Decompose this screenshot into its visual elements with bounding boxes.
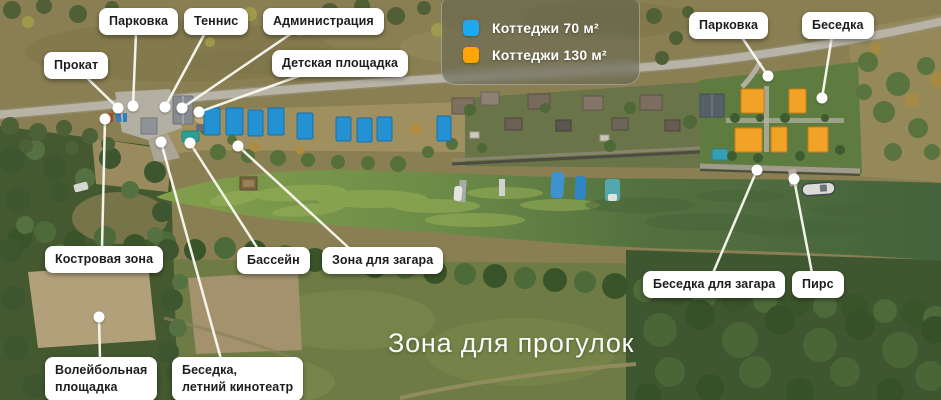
callout-besedka-dlya-zagara: Беседка для загара [643, 271, 785, 298]
legend-swatch-cottage-70 [463, 20, 479, 36]
walking-zone-label: Зона для прогулок [388, 328, 634, 359]
callout-zona-dlya-zagara: Зона для загара [322, 247, 443, 274]
legend-label-cottage-130: Коттеджи 130 м² [492, 47, 607, 63]
legend-items: Коттеджи 70 м²Коттеджи 130 м² [463, 20, 639, 63]
legend: Коттеджи 70 м²Коттеджи 130 м² [441, 0, 640, 85]
callout-tennis: Теннис [184, 8, 248, 35]
cottage-70-marker [204, 108, 220, 135]
legend-item-cottage-70: Коттеджи 70 м² [463, 20, 639, 36]
resort-map: ПрокатПарковкаТеннисАдминистрацияДетская… [0, 0, 941, 400]
cottage-70-marker [297, 113, 313, 139]
callout-bassein: Бассейн [237, 247, 310, 274]
cottage-70-marker [377, 117, 392, 141]
callout-prokat: Прокат [44, 52, 108, 79]
cottage-70-marker [336, 117, 351, 141]
cottage-70-marker [248, 110, 263, 136]
callout-detskaya-ploshchadka: Детская площадка [272, 50, 408, 77]
callout-kostrovaya-zona: Костровая зона [45, 246, 163, 273]
cottage-70-marker [357, 118, 372, 142]
cottage-130-marker [771, 127, 787, 152]
legend-swatch-cottage-130 [463, 47, 479, 63]
cottage-70-marker [226, 108, 243, 135]
legend-item-cottage-130: Коттеджи 130 м² [463, 47, 639, 63]
callout-administratsiya: Администрация [263, 8, 384, 35]
callout-parkovka-left: Парковка [99, 8, 178, 35]
callout-besedka-right: Беседка [802, 12, 874, 39]
cottage-70-marker [437, 116, 451, 141]
callout-besedka-letniy-kinoteatr: Беседка, летний кинотеатр [172, 357, 303, 400]
callout-voleybolnaya-ploshchadka: Волейбольная площадка [45, 357, 157, 400]
cottage-130-marker [741, 89, 764, 113]
cottage-130-marker [735, 128, 762, 152]
cottage-130-marker [808, 127, 828, 152]
callout-parkovka-right: Парковка [689, 12, 768, 39]
cottage-130-marker [789, 89, 806, 113]
callout-pirs: Пирс [792, 271, 844, 298]
legend-label-cottage-70: Коттеджи 70 м² [492, 20, 599, 36]
cottage-70-marker [268, 108, 284, 135]
